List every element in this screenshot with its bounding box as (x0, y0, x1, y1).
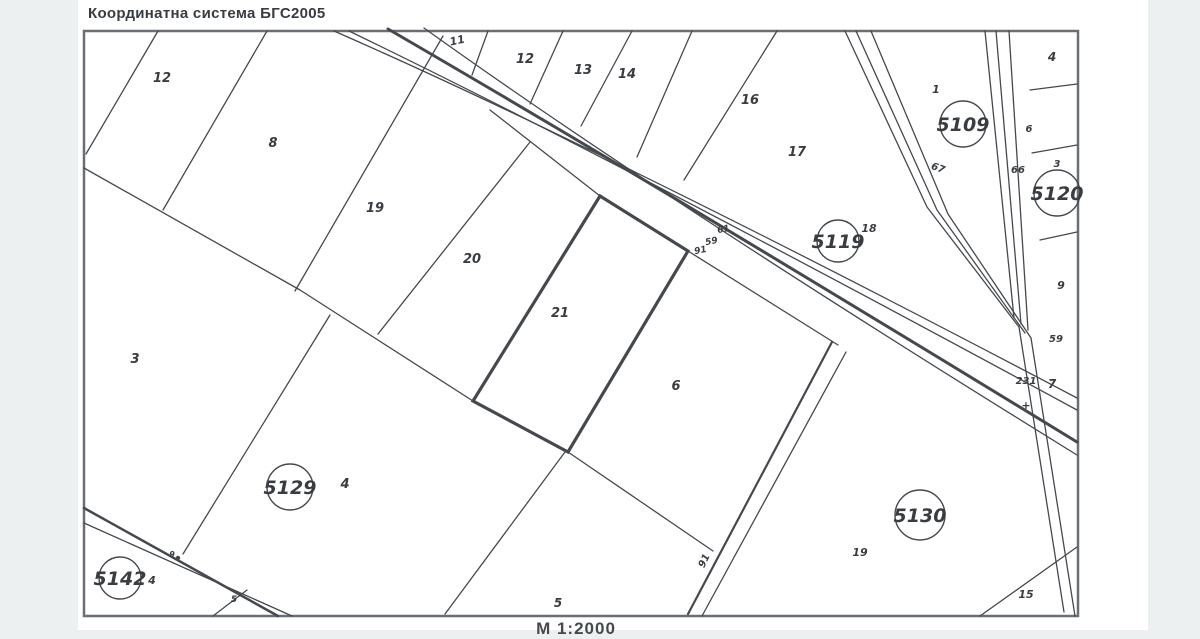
road-line (84, 508, 278, 616)
parcel-number-label: 12 (516, 52, 534, 67)
parcel-number-label: 18 (861, 222, 877, 235)
parcel-number-label: 4 (1047, 50, 1056, 64)
map-scale-label: М 1:2000 (516, 619, 636, 639)
road-line (388, 29, 1077, 442)
parcel-number-label: 9 (169, 550, 175, 559)
parcel-number-label: + (1021, 399, 1030, 412)
parcel-boundary-line (530, 31, 563, 104)
parcel-number-label: 91 (697, 552, 713, 569)
road-line (845, 31, 1019, 327)
parcel-number-label: 6 (671, 379, 680, 394)
parcel-number-label: 17 (788, 145, 807, 160)
parcel-boundary-line (1032, 145, 1077, 153)
parcel-number-label: 11 (448, 33, 466, 49)
cadastral-map: 5109511951205129513051421281920216345111… (0, 0, 1200, 630)
parcel-number-label: 59 (1049, 334, 1063, 345)
parcel-boundary-line (1040, 232, 1077, 240)
map-border (84, 31, 1078, 616)
parcel-number-label: 20 (463, 252, 481, 267)
zone-number-5120: 5120 (1031, 183, 1084, 205)
parcel-number-label: 14 (618, 67, 636, 82)
zone-number-5129: 5129 (264, 477, 317, 499)
parcel-number-label: 5 (231, 595, 237, 605)
road-line (702, 352, 846, 616)
zone-number-5130: 5130 (894, 505, 947, 527)
parcel-number-label: 7 (1048, 377, 1057, 391)
parcel-number-label: 3 (130, 352, 139, 367)
parcel-number-label: 13 (574, 63, 592, 78)
parcel-boundary-line (183, 315, 330, 554)
parcel-number-label: 16 (741, 93, 759, 108)
parcel-number-label: 231 (1016, 376, 1037, 387)
parcel-boundary-line (637, 31, 692, 157)
parcel-boundary-line (84, 168, 713, 551)
zone-number-5119: 5119 (812, 231, 865, 253)
parcel-number-label: 4 (339, 477, 349, 492)
parcel-number-label: 3 (1054, 159, 1061, 170)
parcel-number-label: 19 (852, 546, 868, 559)
parcel-boundary-line (445, 452, 565, 614)
zone-number-5142: 5142 (94, 568, 147, 590)
parcel-boundary-line (86, 31, 158, 154)
road-line (334, 31, 1077, 398)
parcel-number-label: 8 (268, 136, 277, 151)
parcel-number-label: 4 (147, 574, 156, 587)
parcel-number-label: 19 (366, 201, 384, 216)
parcel-number-label: 1 (932, 83, 940, 96)
cadastral-map-container: 5109511951205129513051421281920216345111… (0, 0, 1200, 630)
parcel-number-label: 12 (153, 71, 171, 86)
road-line (688, 342, 832, 614)
parcel-number-label: 6 (1026, 124, 1033, 135)
road-line (1019, 327, 1064, 612)
highlighted-parcel-21 (473, 196, 688, 452)
survey-point-dot (176, 556, 180, 560)
parcel-number-label: 15 (1018, 588, 1034, 601)
road-line (1009, 31, 1028, 330)
parcel-number-label: 66 (1011, 165, 1025, 176)
parcel-boundary-line (295, 36, 443, 291)
parcel-number-label: 67 (929, 161, 946, 176)
parcel-number-label: 9 (1057, 279, 1065, 292)
parcel-number-label: 59 (704, 236, 718, 248)
parcel-boundary-line (163, 31, 267, 210)
zone-number-5109: 5109 (937, 114, 990, 136)
parcel-boundary-line (684, 31, 777, 180)
parcel-number-label: 5 (554, 596, 562, 610)
road-line (871, 31, 1031, 338)
parcel-boundary-line (378, 142, 530, 334)
parcel-number-label: 21 (551, 306, 569, 321)
parcel-number-label: 91 (693, 245, 707, 257)
parcel-boundary-line (1030, 84, 1077, 90)
road-line (490, 110, 838, 345)
